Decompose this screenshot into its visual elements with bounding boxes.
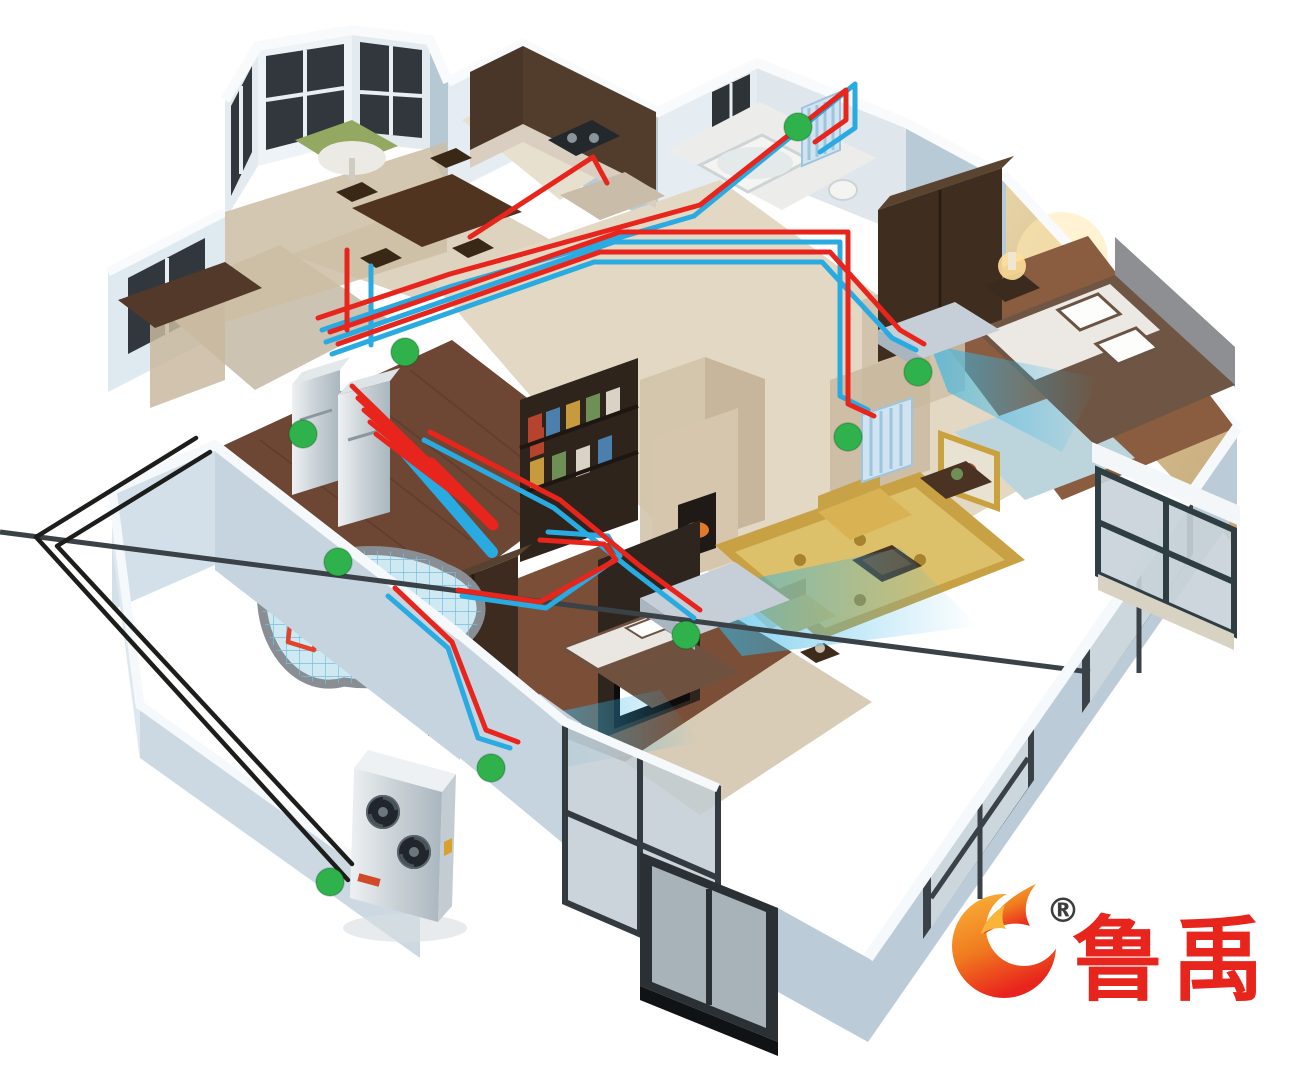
fan bbox=[397, 835, 431, 869]
measure-point-marker bbox=[672, 621, 700, 649]
measure-point-marker bbox=[904, 358, 932, 386]
brand-logo: ® 鲁禹 bbox=[952, 884, 1272, 1014]
measure-point-marker bbox=[477, 754, 505, 782]
fan bbox=[366, 795, 400, 829]
toilet bbox=[829, 180, 857, 200]
measure-point-marker bbox=[324, 548, 352, 576]
measure-point-marker bbox=[784, 113, 812, 141]
brand-text: 鲁禹 bbox=[1072, 907, 1272, 1014]
flame-crescent-logo-icon bbox=[952, 884, 1056, 998]
entry-glass-door bbox=[640, 852, 778, 1056]
measure-point-marker bbox=[391, 338, 419, 366]
measure-point-marker bbox=[316, 868, 344, 896]
kitchen-cabinets bbox=[470, 46, 665, 220]
hvac-house-illustration: ® 鲁禹 bbox=[0, 0, 1314, 1065]
measure-point-marker bbox=[289, 420, 317, 448]
measure-point-marker bbox=[834, 423, 862, 451]
